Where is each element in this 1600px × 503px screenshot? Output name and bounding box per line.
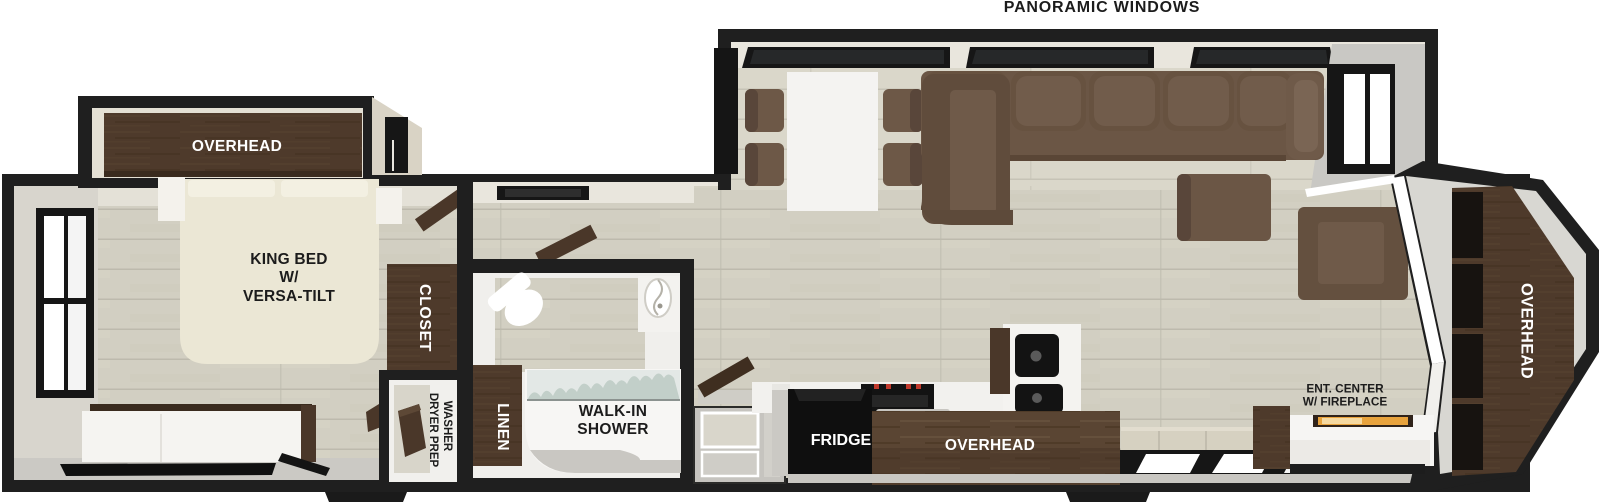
svg-text:W/ FIREPLACE: W/ FIREPLACE <box>1303 395 1388 409</box>
svg-text:ENT. CENTER: ENT. CENTER <box>1306 382 1384 396</box>
svg-text:FRIDGE: FRIDGE <box>811 432 872 449</box>
svg-text:LINEN: LINEN <box>494 403 511 451</box>
svg-text:CLOSET: CLOSET <box>416 284 433 352</box>
svg-text:W/: W/ <box>279 269 299 286</box>
svg-text:OVERHEAD: OVERHEAD <box>192 138 282 155</box>
svg-text:WALK-IN: WALK-IN <box>579 403 647 420</box>
svg-text:VERSA-TILT: VERSA-TILT <box>243 288 335 305</box>
svg-text:PANORAMIC WINDOWS: PANORAMIC WINDOWS <box>1004 0 1200 16</box>
svg-text:WASHER: WASHER <box>441 401 453 452</box>
svg-text:SHOWER: SHOWER <box>577 421 649 438</box>
svg-text:KING BED: KING BED <box>250 251 327 268</box>
svg-text:OVERHEAD: OVERHEAD <box>945 437 1035 454</box>
svg-text:OVERHEAD: OVERHEAD <box>1518 283 1536 379</box>
svg-text:DRYER PREP: DRYER PREP <box>427 393 439 468</box>
